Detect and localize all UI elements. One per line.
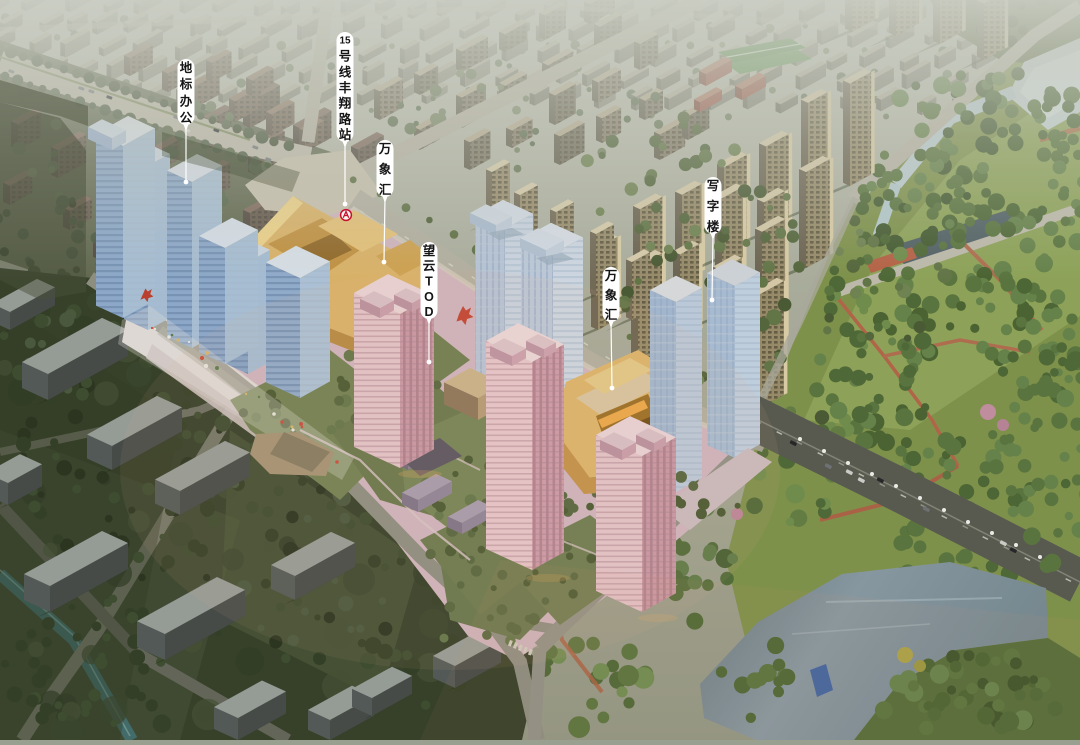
svg-text:站: 站 xyxy=(339,127,352,142)
svg-text:D: D xyxy=(424,305,433,319)
svg-text:字: 字 xyxy=(707,199,720,214)
svg-text:象: 象 xyxy=(605,288,618,303)
svg-text:望: 望 xyxy=(423,243,436,258)
svg-text:汇: 汇 xyxy=(605,308,618,322)
svg-text:楼: 楼 xyxy=(707,219,720,234)
svg-text:写: 写 xyxy=(707,179,720,193)
svg-text:路: 路 xyxy=(339,111,352,126)
svg-text:翔: 翔 xyxy=(338,96,352,111)
svg-text:地: 地 xyxy=(180,60,193,75)
svg-text:O: O xyxy=(424,290,434,304)
svg-text:标: 标 xyxy=(179,77,193,92)
svg-text:汇: 汇 xyxy=(379,183,392,197)
svg-text:线: 线 xyxy=(339,64,352,79)
svg-text:号: 号 xyxy=(339,49,352,64)
svg-text:万: 万 xyxy=(604,269,618,283)
svg-text:象: 象 xyxy=(379,162,392,177)
svg-text:办: 办 xyxy=(180,93,193,108)
svg-text:丰: 丰 xyxy=(339,80,352,95)
svg-text:公: 公 xyxy=(180,111,193,125)
svg-text:云: 云 xyxy=(423,259,436,273)
svg-text:万: 万 xyxy=(378,142,392,156)
svg-text:15: 15 xyxy=(339,36,351,47)
svg-text:T: T xyxy=(425,275,433,289)
